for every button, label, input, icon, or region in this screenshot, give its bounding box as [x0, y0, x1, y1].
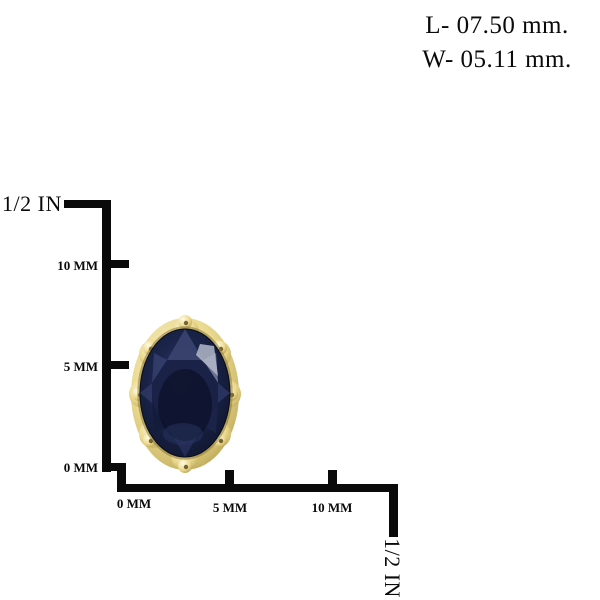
width-value: W- 05.11 mm.	[382, 43, 600, 77]
vertical-ruler-label-5mm: 5 MM	[36, 359, 98, 374]
dimension-readout: L- 07.50 mm. W- 05.11 mm.	[382, 9, 600, 77]
vertical-ruler-tick-10mm	[102, 260, 129, 268]
product-measurement-image: L- 07.50 mm. W- 05.11 mm. 1/2 IN 10 MM 5…	[0, 0, 600, 600]
vertical-ruler-line	[102, 200, 111, 472]
vertical-ruler-half-inch-label: 1/2 IN	[2, 192, 62, 216]
horizontal-ruler-half-inch-label: 1/2 IN	[379, 538, 405, 598]
horizontal-ruler-label-0mm: 0 MM	[104, 496, 164, 511]
vertical-ruler-label-0mm: 0 MM	[36, 460, 98, 475]
sapphire-stud-earring-image	[126, 308, 248, 482]
horizontal-ruler-tick-10mm	[328, 470, 337, 484]
horizontal-ruler-line	[117, 484, 398, 492]
length-value: L- 07.50 mm.	[382, 9, 600, 43]
horizontal-ruler-end-bar	[389, 484, 398, 537]
vertical-ruler-tick-5mm	[102, 361, 129, 369]
horizontal-ruler-label-10mm: 10 MM	[302, 500, 362, 515]
gemstone	[140, 329, 230, 457]
vertical-ruler-label-10mm: 10 MM	[36, 258, 98, 273]
horizontal-ruler-label-5mm: 5 MM	[200, 500, 260, 515]
